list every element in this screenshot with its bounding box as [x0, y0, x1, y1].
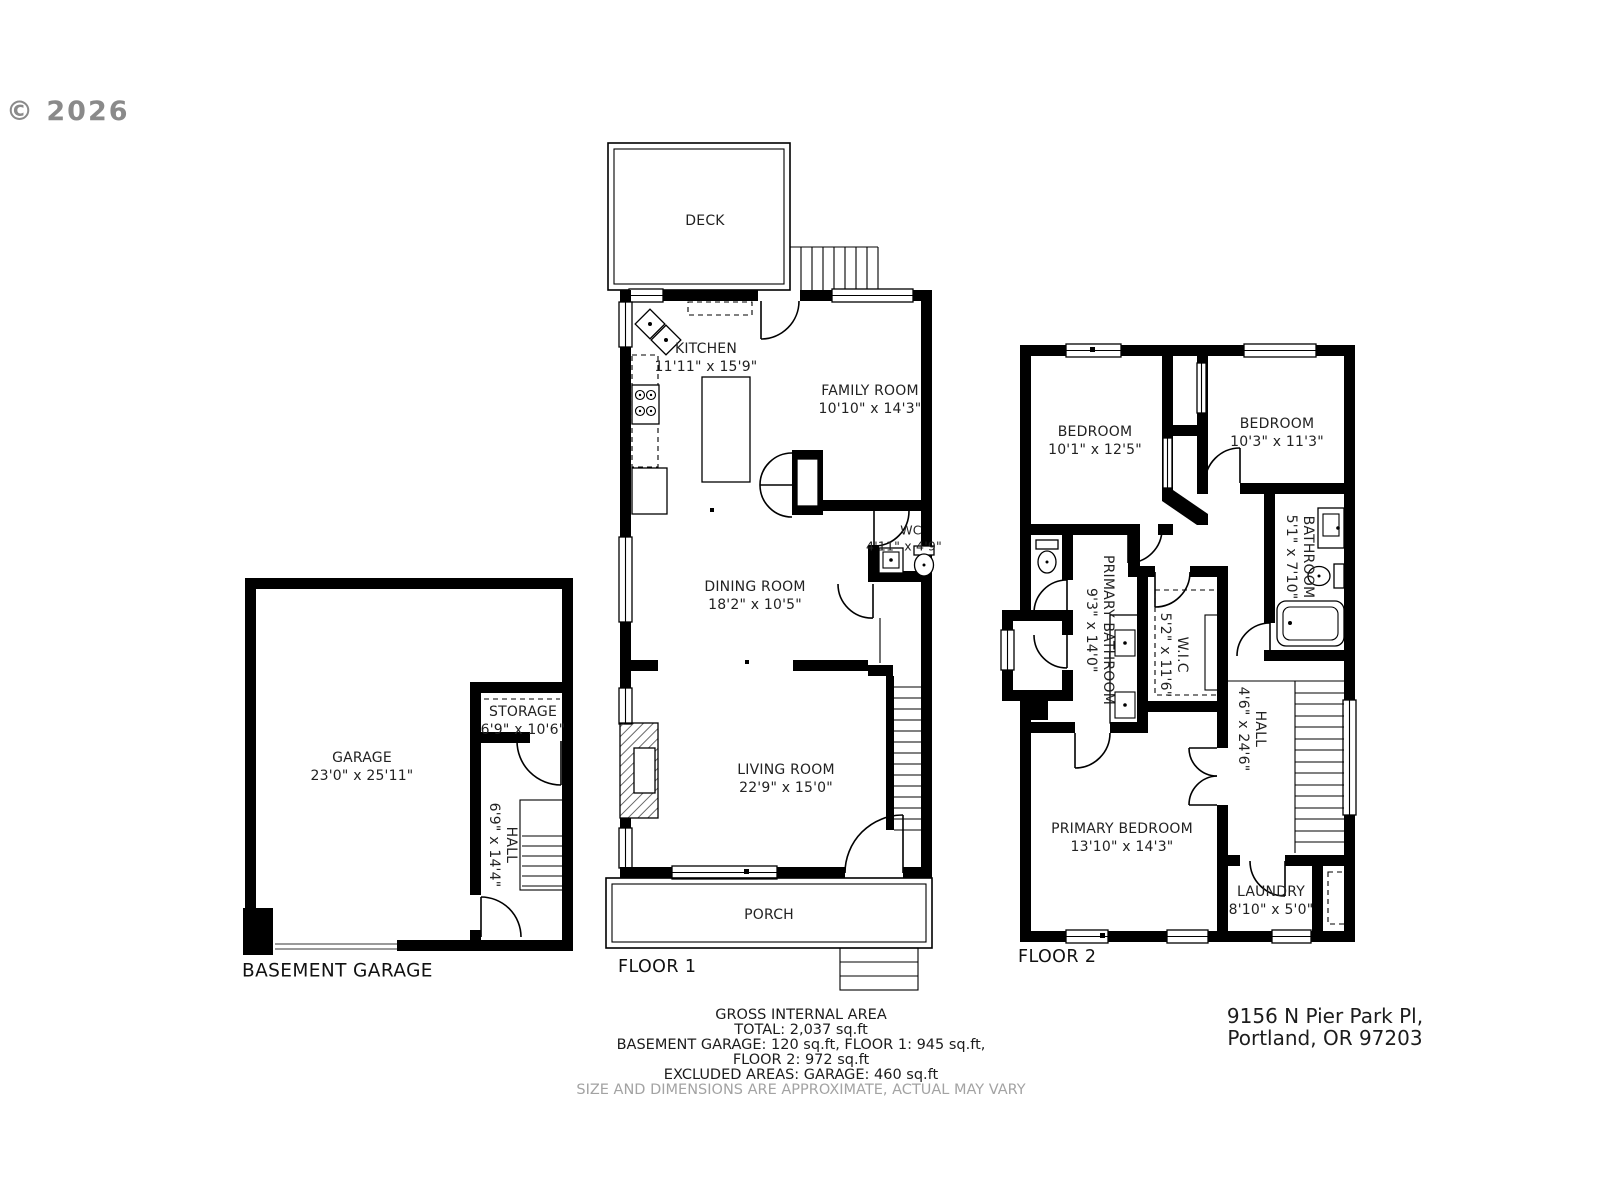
bedroom-right-door-icon [1205, 448, 1240, 483]
room-label-wc-dims: 4'11" x 4'9" [866, 539, 942, 554]
room-label-bedroom-right: BEDROOM 10'3" x 11'3" [1230, 415, 1324, 451]
room-label-wic: W.I.C 5'2" x 11'6" [1156, 613, 1190, 698]
window-icon [832, 289, 913, 302]
floorplan-sheet: © 2026 GARAGE 23'0" x 25'11" STORAGE 6'9… [0, 0, 1600, 1200]
basement-hall-door-icon [481, 897, 521, 937]
bedroom-closets [1162, 356, 1208, 525]
area-summary-disclaimer: SIZE AND DIMENSIONS ARE APPROXIMATE, ACT… [520, 1083, 1082, 1098]
room-label-dining-room: DINING ROOM 18'2" x 10'5" [704, 578, 805, 614]
room-label-family-room: FAMILY ROOM 10'10" x 14'3" [819, 382, 922, 418]
porch-steps-icon [840, 948, 918, 990]
deck-stairs-icon [790, 247, 878, 290]
property-address: 9156 N Pier Park Pl, Portland, OR 97203 [1180, 1006, 1470, 1049]
room-label-primary-bathroom: PRIMARY BATHROOM 9'3" x 14'0" [1082, 555, 1116, 705]
area-summary-title: GROSS INTERNAL AREA [520, 1008, 1082, 1023]
address-line1: 9156 N Pier Park Pl, [1180, 1006, 1470, 1028]
plan-title-floor1: FLOOR 1 [618, 957, 696, 977]
room-label-wc: WC [900, 523, 922, 538]
storage-door-icon [517, 741, 561, 785]
window-icon [629, 289, 663, 302]
room-label-laundry: LAUNDRY 8'10" x 5'0" [1229, 883, 1314, 919]
floor1-stairs-icon [868, 618, 921, 830]
window-icon [619, 688, 632, 724]
area-summary: GROSS INTERNAL AREA TOTAL: 2,037 sq.ft B… [520, 1008, 1082, 1097]
window-icon [1001, 630, 1014, 670]
copyright-watermark: © 2026 [6, 96, 130, 127]
toilet-icon [1036, 540, 1058, 549]
fireplace-icon [620, 723, 658, 818]
family-room-closet-icon [760, 450, 823, 517]
area-summary-total: TOTAL: 2,037 sq.ft [520, 1023, 1082, 1038]
room-label-porch: PORCH [744, 906, 794, 924]
room-label-garage: GARAGE 23'0" x 25'11" [311, 749, 414, 785]
window-icon [1244, 344, 1316, 357]
area-summary-breakdown2: FLOOR 2: 972 sq.ft [520, 1053, 1082, 1068]
kitchen-door-icon [761, 301, 799, 339]
window-icon [1343, 700, 1356, 815]
window-icon [1167, 930, 1208, 943]
floor1-plan [606, 143, 934, 990]
window-icon [1272, 930, 1311, 943]
window-icon [619, 828, 632, 868]
area-summary-breakdown1: BASEMENT GARAGE: 120 sq.ft, FLOOR 1: 945… [520, 1038, 1082, 1053]
basement-stairs-icon [520, 800, 566, 890]
address-line2: Portland, OR 97203 [1180, 1028, 1470, 1050]
room-label-basement-hall: HALL 6'9" x 14'4" [485, 803, 519, 888]
primary-bedroom-double-doors-icon [1189, 748, 1217, 805]
room-label-storage: STORAGE 6'9" x 10'6" [481, 703, 566, 739]
room-label-floor2-hall: HALL 4'6" x 24'6" [1234, 687, 1268, 772]
front-door-icon [845, 815, 903, 873]
room-label-kitchen: KITCHEN 11'11" x 15'9" [655, 340, 758, 376]
fridge-icon [632, 468, 667, 514]
plan-title-floor2: FLOOR 2 [1018, 947, 1096, 967]
stair-closet-door-icon [838, 584, 873, 618]
window-icon [619, 302, 632, 347]
room-label-bedroom-left: BEDROOM 10'1" x 12'5" [1048, 423, 1142, 459]
window-icon [619, 537, 632, 622]
window-icon [672, 866, 777, 879]
room-label-bathroom: BATHROOM 5'1" x 7'10" [1282, 515, 1316, 600]
kitchen-island-icon [702, 377, 750, 482]
toilet-icon [1334, 564, 1344, 588]
room-label-living-room: LIVING ROOM 22'9" x 15'0" [737, 761, 834, 797]
room-label-primary-bedroom: PRIMARY BEDROOM 13'10" x 14'3" [1051, 820, 1193, 856]
plan-title-basement: BASEMENT GARAGE [242, 961, 433, 982]
area-summary-excluded: EXCLUDED AREAS: GARAGE: 460 sq.ft [520, 1068, 1082, 1083]
room-label-deck: DECK [685, 212, 724, 230]
stove-icon [632, 385, 659, 424]
